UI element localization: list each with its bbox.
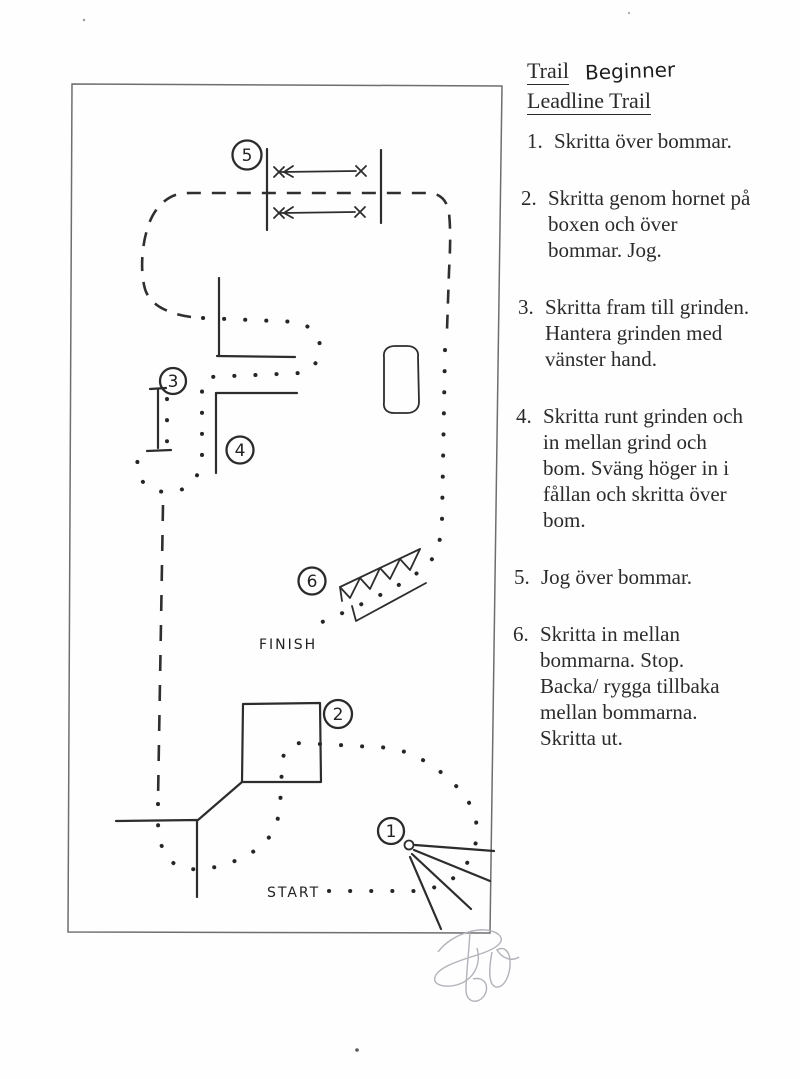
instruction-item: 1.Skritta över bommar. [527,128,798,154]
instruction-text: Skritta runt grinden ochin mellan grind … [543,403,798,533]
marker-6: 6 [299,568,326,595]
measure-line [281,171,356,172]
marker-4: 4 [227,437,254,464]
fan-hub-icon [405,841,414,850]
marker-2-label: 2 [333,705,344,725]
instruction-number: 3. [518,294,534,320]
marker-1: 1 [378,818,404,844]
rail-line [217,356,295,357]
instruction-text: Jog över bommar. [541,564,798,590]
jog-path-dashed [142,193,450,800]
jog-line-left [158,505,163,800]
fan-pole [415,845,494,851]
marker-4-label: 4 [235,441,246,461]
walk-path-dotted [137,318,477,891]
instruction-item: 6.Skritta in mellanbommarna. Stop.Backa/… [513,621,798,751]
measure-line [281,212,355,213]
barrel [384,346,419,413]
instruction-number: 4. [516,403,532,429]
marker-3: 3 [160,368,186,394]
walk-right-side-to-finish [306,350,445,629]
instruction-number: 6. [513,621,529,647]
corner-rails [116,782,242,897]
marker-5: 5 [233,141,262,170]
zigzag-bottom-rail [352,583,426,621]
signature [435,930,519,1001]
gate-bottom-cap [147,450,171,451]
walk-corridor-and-gate-loop [137,318,320,492]
instruction-list: 1.Skritta över bommar.2.Skritta genom ho… [516,128,798,751]
instruction-text: Skritta fram till grinden.Hantera grinde… [545,294,798,372]
document-header: TrailBeginner Leadline Trail [527,56,798,116]
corner-diagonal [198,782,242,820]
page-subtitle: Leadline Trail [527,88,651,115]
instruction-item: 5.Jog över bommar. [514,564,798,590]
instruction-item: 3.Skritta fram till grinden.Hantera grin… [518,294,798,372]
obstacle-5-poles [267,149,381,230]
scanned-trail-course-page: { "doc": { "title": "Trail", "title_anno… [0,0,800,1079]
marker-5-label: 5 [242,146,253,166]
start-label: START [267,885,320,901]
marker-1-label: 1 [386,822,397,842]
marker-3-label: 3 [168,372,179,392]
instruction-text: Skritta genom hornet påboxen och överbom… [548,185,798,263]
instruction-item: 2.Skritta genom hornet påboxen och överb… [521,185,798,263]
x-mark-icon [355,207,365,217]
fan-poles [405,841,495,930]
marker-2: 2 [324,700,352,728]
zigzag-bommar [340,549,426,621]
page-title: Trail [527,58,569,85]
instruction-number: 2. [521,185,537,211]
title-annotation: Beginner [584,54,675,87]
subtitle-line: Leadline Trail [527,86,798,116]
marker-6-label: 6 [307,572,318,592]
instruction-number: 1. [527,128,543,154]
instruction-item: 4.Skritta runt grinden ochin mellan grin… [516,403,798,533]
instruction-column: TrailBeginner Leadline Trail 1.Skritta ö… [516,56,798,782]
box-square [242,703,321,782]
title-line: TrailBeginner [527,56,798,86]
instruction-number: 5. [514,564,530,590]
instruction-text: Skritta in mellanbommarna. Stop.Backa/ r… [540,621,798,751]
instruction-text: Skritta över bommar. [554,128,798,154]
corner-line [116,820,197,897]
finish-label: FINISH [259,637,317,653]
x-mark-icon [356,166,366,176]
